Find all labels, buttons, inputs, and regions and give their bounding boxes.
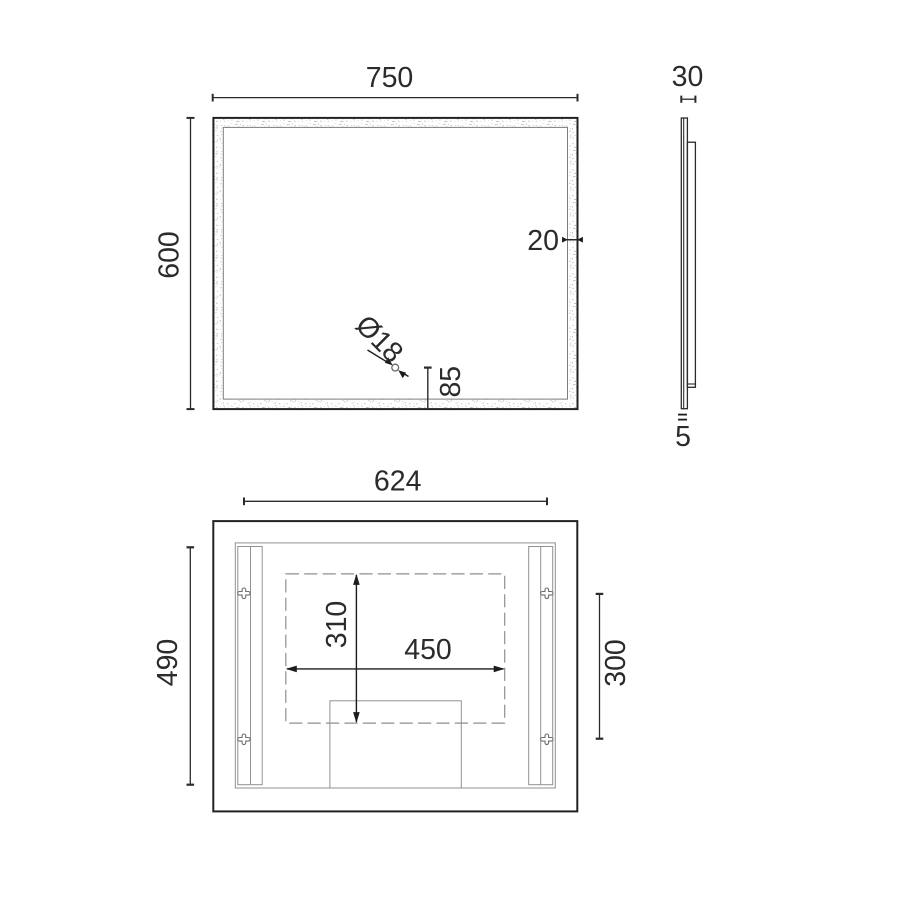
svg-text:490: 490 (152, 639, 184, 687)
svg-text:300: 300 (600, 639, 632, 687)
svg-text:20: 20 (527, 225, 559, 257)
svg-text:5: 5 (675, 421, 691, 453)
svg-text:310: 310 (321, 601, 353, 649)
svg-text:600: 600 (154, 231, 186, 279)
svg-text:85: 85 (435, 366, 467, 398)
svg-text:624: 624 (374, 466, 422, 498)
svg-text:450: 450 (404, 634, 452, 666)
svg-text:Ø18: Ø18 (349, 309, 409, 369)
svg-text:750: 750 (366, 62, 414, 94)
svg-text:30: 30 (672, 61, 704, 93)
